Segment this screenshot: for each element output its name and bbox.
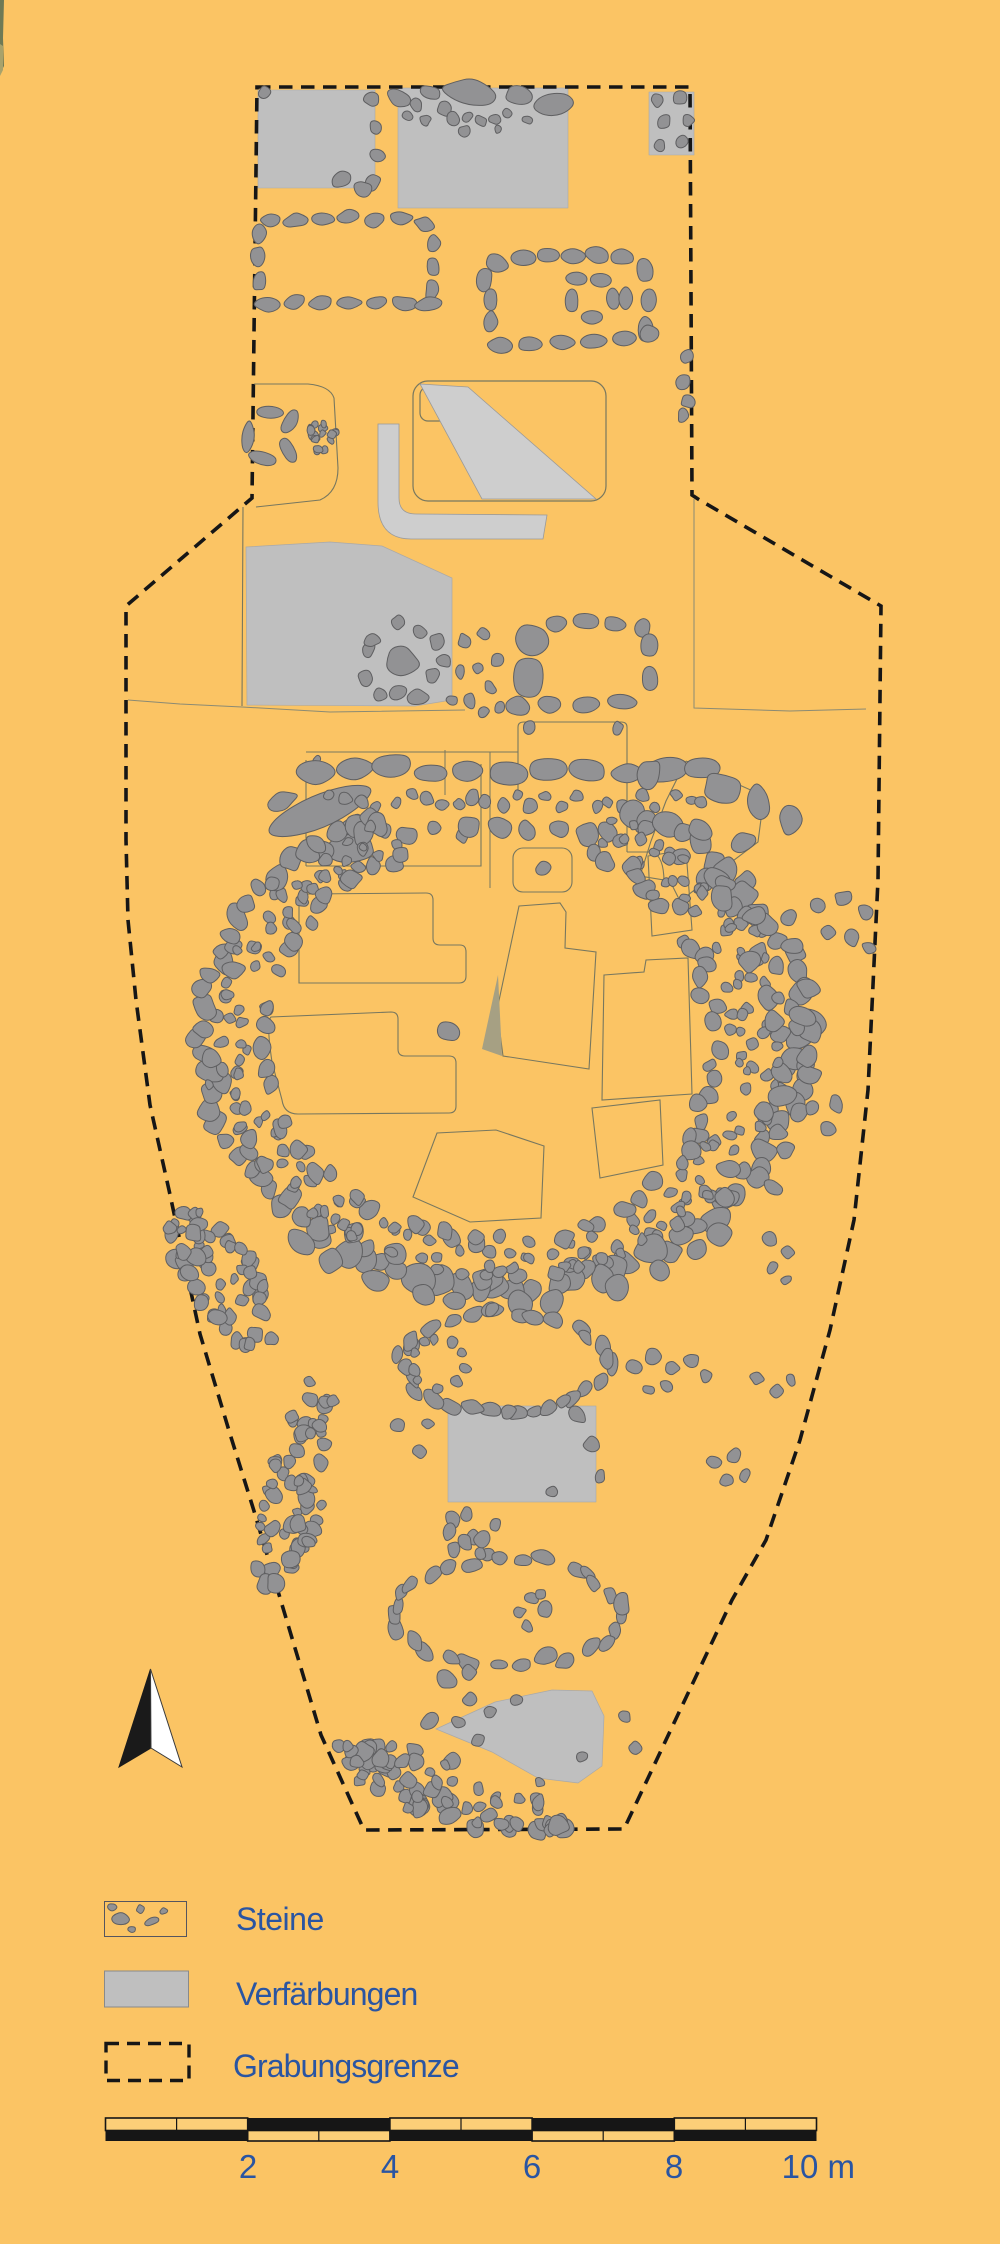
svg-text:Verfärbungen: Verfärbungen bbox=[236, 1976, 417, 2012]
svg-text:4: 4 bbox=[381, 2148, 399, 2185]
svg-text:Steine: Steine bbox=[236, 1901, 324, 1937]
svg-text:2: 2 bbox=[239, 2148, 257, 2185]
svg-text:Grabungsgrenze: Grabungsgrenze bbox=[233, 2048, 459, 2084]
svg-text:8: 8 bbox=[665, 2148, 683, 2185]
svg-text:6: 6 bbox=[523, 2148, 541, 2185]
svg-text:10 m: 10 m bbox=[782, 2148, 855, 2185]
